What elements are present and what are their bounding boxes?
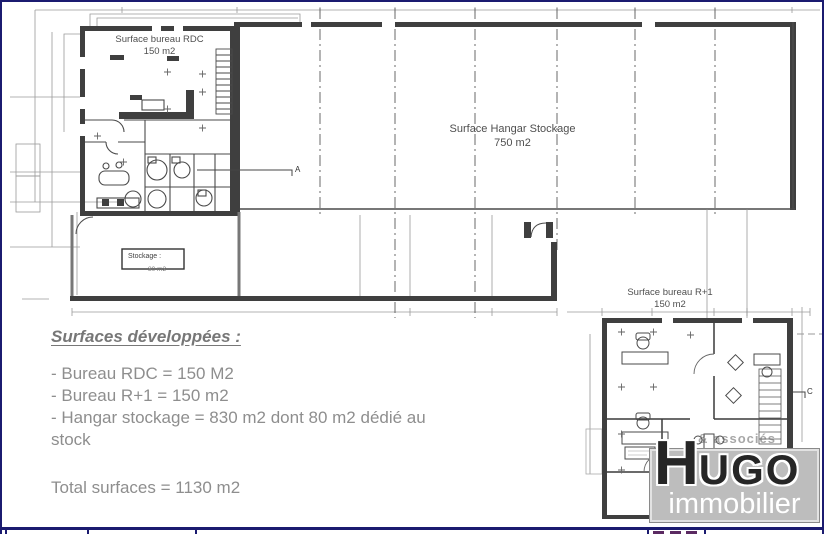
hangar-area-title: Surface Hangar Stockage <box>430 123 595 137</box>
surfaces-summary: Surfaces développées : - Bureau RDC = 15… <box>51 327 451 451</box>
r1-area-label: Surface bureau R+1 150 m2 <box>610 287 730 311</box>
summary-item-r1: - Bureau R+1 = 150 m2 <box>51 385 451 407</box>
section-marker-a: A <box>295 165 300 174</box>
title-block-divider <box>195 530 197 534</box>
logo-word: HUGO <box>654 436 800 492</box>
logo-subtitle: immobilier <box>652 489 817 519</box>
hangar-area-label: Surface Hangar Stockage 750 m2 <box>430 123 595 151</box>
title-block-divider <box>704 530 706 534</box>
section-marker-c: C <box>807 387 813 396</box>
rdc-area-title: Surface bureau RDC <box>97 34 222 46</box>
hangar-area-value: 750 m2 <box>430 137 595 151</box>
hangar-plan <box>234 22 796 210</box>
summary-total: Total surfaces = 1130 m2 <box>51 478 240 498</box>
logo-word-initial: H <box>654 436 699 492</box>
rdc-area-label: Surface bureau RDC 150 m2 <box>97 34 222 58</box>
title-block-divider <box>5 530 7 534</box>
stockage-room-label: Stockage : <box>128 253 161 260</box>
floor-plan-sheet: Surface bureau RDC 150 m2 Surface Hangar… <box>0 0 824 534</box>
section-line-a <box>197 170 292 176</box>
summary-item-rdc: - Bureau RDC = 150 M2 <box>51 363 451 385</box>
rdc-stairs-icon <box>216 49 232 114</box>
title-block-top-line <box>2 527 824 530</box>
summary-heading: Surfaces développées : <box>51 327 451 347</box>
section-line-c <box>792 392 805 398</box>
logo-word-rest: UGO <box>699 450 801 490</box>
rdc-area-value: 150 m2 <box>97 46 222 58</box>
title-block-divider <box>647 530 649 534</box>
hangar-grid-lines <box>320 8 715 318</box>
stockage-room-area: 80 m2 <box>148 266 166 273</box>
r1-area-title: Surface bureau R+1 <box>610 287 730 299</box>
r1-area-value: 150 m2 <box>610 299 730 311</box>
hugo-immobilier-logo: HUGO immobilier <box>650 449 819 522</box>
title-block-divider <box>87 530 89 534</box>
summary-item-hangar: - Hangar stockage = 830 m2 dont 80 m2 dé… <box>51 407 451 451</box>
